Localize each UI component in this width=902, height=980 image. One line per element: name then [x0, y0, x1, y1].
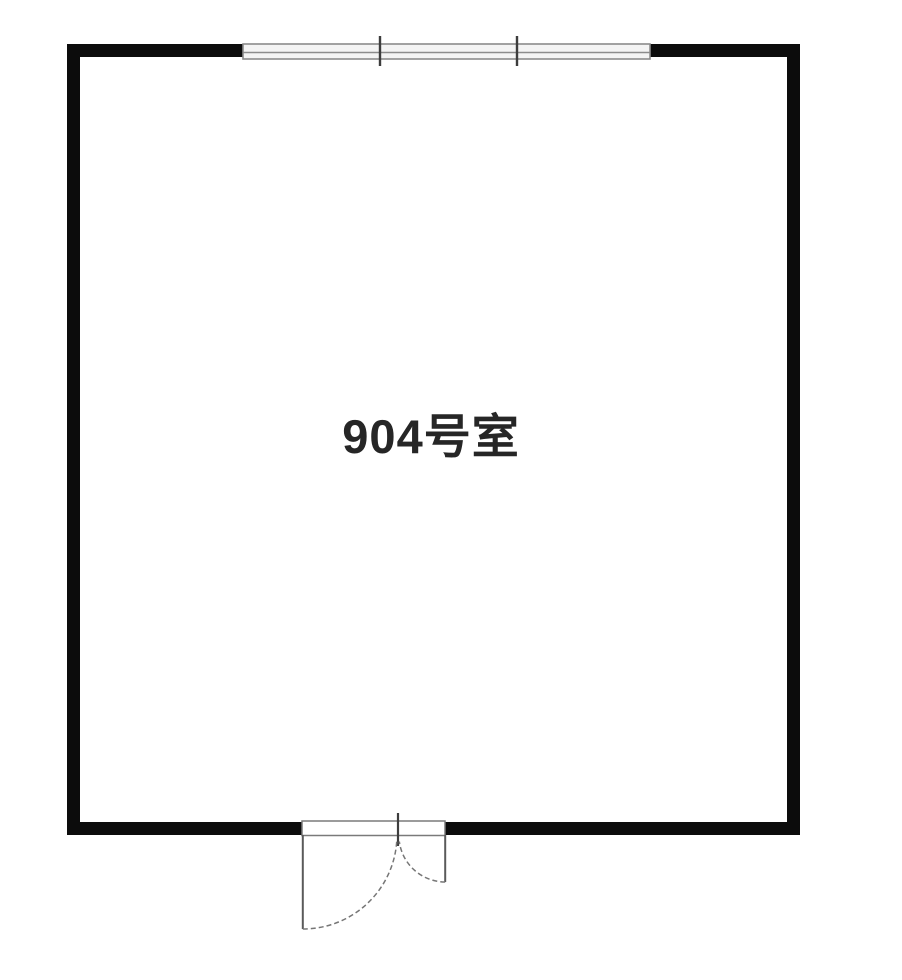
wall-right	[787, 44, 800, 835]
door-opening	[302, 821, 445, 836]
window-symbol	[243, 36, 650, 66]
wall-bottom-left-segment	[67, 822, 302, 835]
wall-top-right-segment	[650, 44, 800, 57]
door-swing-arc-small	[399, 842, 445, 883]
wall-top-left-segment	[67, 44, 243, 57]
wall-bottom-right-segment	[445, 822, 800, 835]
room-label: 904号室	[342, 413, 519, 460]
wall-left	[67, 44, 80, 835]
window-frame	[243, 44, 650, 59]
floorplan-canvas: 904号室	[0, 0, 902, 980]
door-swing-arc-large	[303, 841, 397, 930]
floorplan-drawing	[0, 0, 902, 980]
door-symbol	[302, 813, 445, 929]
